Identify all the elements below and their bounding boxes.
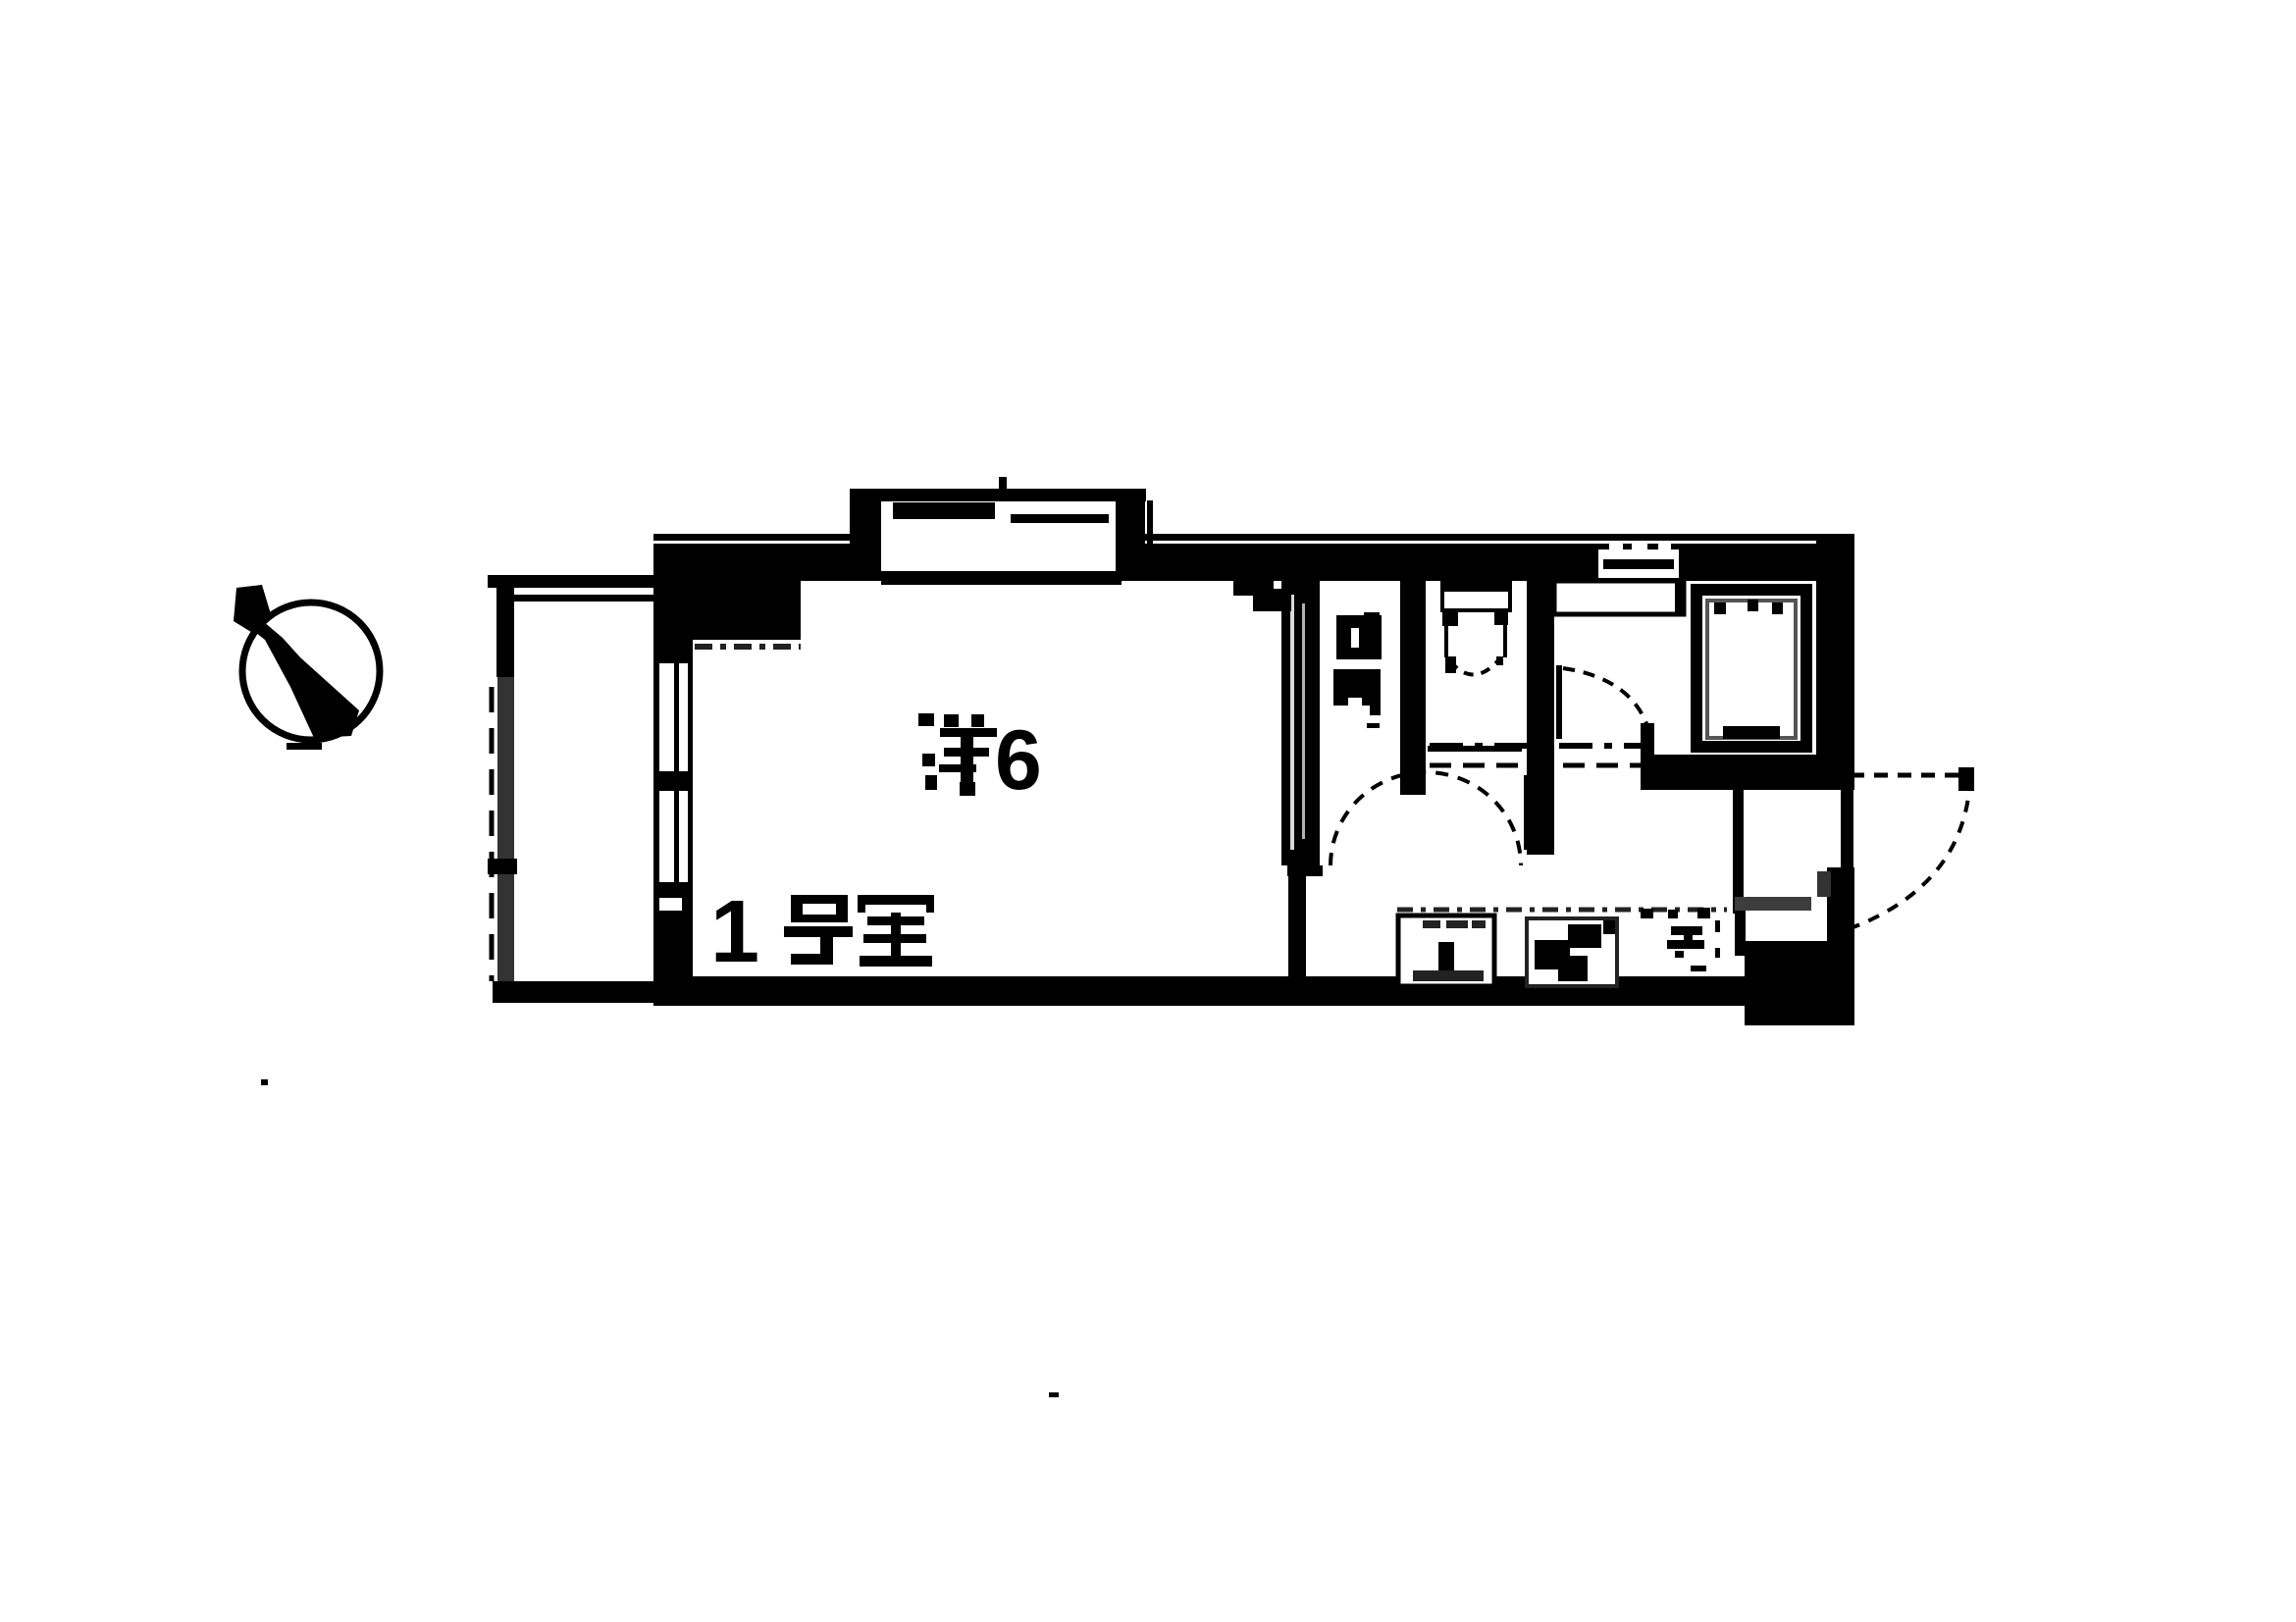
svg-text:1: 1 (710, 883, 759, 981)
svg-text:6: 6 (995, 713, 1042, 808)
